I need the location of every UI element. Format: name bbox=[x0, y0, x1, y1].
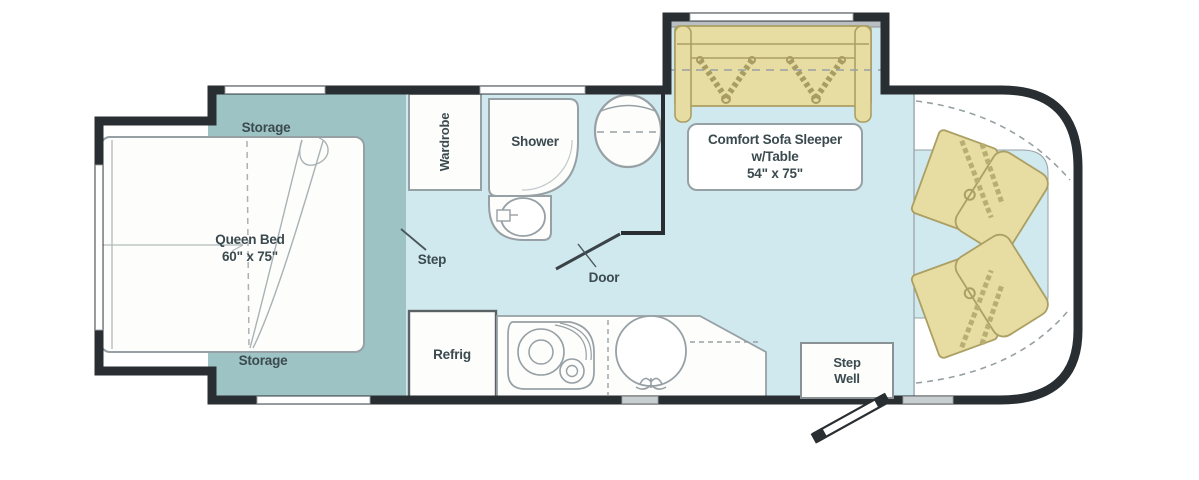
toilet bbox=[595, 95, 662, 167]
storage-top-label: Storage bbox=[242, 120, 292, 135]
sofa-label-line3: 54" x 75" bbox=[747, 166, 803, 181]
window-bath-top bbox=[480, 87, 585, 94]
step-label: Step bbox=[418, 252, 446, 267]
wardrobe-label: Wardrobe bbox=[437, 113, 452, 172]
window-bedroom-bottom bbox=[257, 397, 370, 404]
shower-label: Shower bbox=[511, 134, 560, 149]
floorplan-canvas: Storage Storage Queen Bed 60" x 75" Ward… bbox=[0, 0, 1199, 480]
window-galley-bottom bbox=[622, 397, 658, 404]
step-well: Step Well bbox=[801, 343, 893, 398]
rv-floorplan: Storage Storage Queen Bed 60" x 75" Ward… bbox=[0, 0, 1199, 480]
sofa-label-line1: Comfort Sofa Sleeper bbox=[708, 132, 843, 147]
window-slideout-top bbox=[690, 14, 853, 21]
faucet-icon bbox=[497, 210, 510, 221]
queen-bed-size: 60" x 75" bbox=[222, 249, 278, 264]
sofa-label-box: Comfort Sofa Sleeper w/Table 54" x 75" bbox=[688, 124, 862, 190]
sofa-label-line2: w/Table bbox=[750, 149, 799, 164]
shower: Shower bbox=[489, 99, 578, 196]
wardrobe: Wardrobe bbox=[409, 94, 481, 190]
storage-bottom-label: Storage bbox=[239, 353, 289, 368]
window-cab-bottom bbox=[903, 397, 953, 404]
queen-bed-label: Queen Bed bbox=[215, 232, 284, 247]
window-rear bbox=[96, 165, 103, 330]
refrig-label: Refrig bbox=[433, 347, 471, 362]
sofa-armrest-left bbox=[675, 26, 691, 122]
step-well-label-line2: Well bbox=[834, 371, 860, 386]
sofa-sleeper bbox=[668, 17, 888, 122]
window-bedroom-top bbox=[225, 87, 325, 94]
door-label: Door bbox=[589, 270, 621, 285]
step-well-label-line1: Step bbox=[833, 355, 861, 370]
sofa-armrest-right bbox=[855, 26, 871, 122]
refrigerator: Refrig bbox=[409, 311, 496, 398]
